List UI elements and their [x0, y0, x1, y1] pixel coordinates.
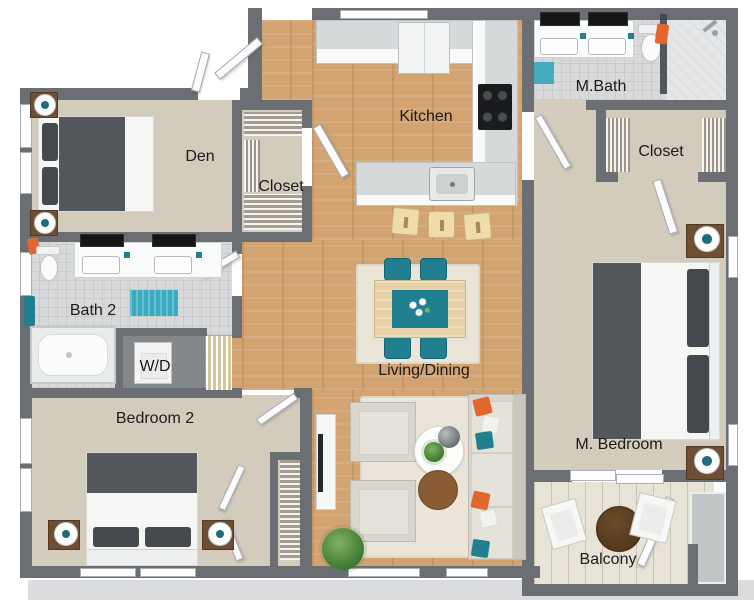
- window: [728, 236, 738, 278]
- coffee-table-plant: [424, 442, 444, 462]
- fridge: [398, 22, 450, 74]
- window: [446, 568, 488, 577]
- room-label-kitchen: Kitchen: [399, 108, 452, 126]
- bedroom2-bed: [86, 452, 198, 566]
- wall: [596, 172, 618, 182]
- room-label-mbedroom: M. Bedroom: [575, 436, 662, 454]
- room-label-balcony: Balcony: [580, 551, 637, 569]
- balcony-sliding-door: [616, 474, 664, 484]
- centerpiece-flowers: [404, 294, 434, 322]
- window: [20, 418, 32, 464]
- wall: [522, 8, 534, 112]
- wall: [586, 100, 738, 110]
- bedroom2-lamp: [54, 522, 78, 546]
- wall: [300, 398, 312, 568]
- armchair-cushion: [359, 489, 409, 535]
- master-bed-pillow: [687, 355, 709, 433]
- room-label-bath2: Bath 2: [70, 302, 116, 320]
- balcony-chair-seat: [638, 502, 668, 535]
- kitchen-sink: [429, 167, 475, 201]
- bathtub: [30, 326, 116, 384]
- lamp-dot: [702, 456, 712, 466]
- den-bed-blanket: [59, 117, 125, 211]
- cooktop: [478, 84, 512, 130]
- bedroom2-closet-shelves: [280, 460, 300, 560]
- sofa-back: [513, 395, 525, 559]
- bar-stool: [428, 211, 455, 238]
- bedroom2-bed-blanket: [87, 453, 197, 493]
- side-table: [418, 470, 458, 510]
- faucet: [450, 182, 455, 187]
- room-label-wd: W/D: [139, 358, 170, 376]
- wall: [302, 110, 312, 128]
- bath2-sink: [82, 256, 120, 274]
- wall: [698, 172, 738, 182]
- tv: [318, 434, 323, 492]
- bath2-mirror: [80, 234, 124, 247]
- room-label-mcloset: Closet: [638, 143, 683, 161]
- lamp-dot: [41, 101, 49, 109]
- window: [20, 468, 32, 512]
- fridge-divider: [424, 23, 425, 73]
- window: [340, 10, 428, 19]
- wall: [232, 296, 242, 338]
- wall: [522, 584, 738, 596]
- bedroom2-bed-sheet: [87, 493, 197, 527]
- mbath-mirror: [540, 12, 580, 26]
- den-bed: [38, 116, 154, 212]
- den-lamp: [34, 212, 56, 234]
- window: [140, 568, 196, 577]
- room-label-den: Den: [185, 148, 214, 166]
- wall: [232, 100, 242, 232]
- room-label-mbath: M.Bath: [576, 78, 627, 96]
- window: [728, 424, 738, 466]
- room-label-bedroom2: Bedroom 2: [116, 410, 194, 428]
- master-bed-sheet: [641, 263, 685, 439]
- wall: [270, 452, 278, 566]
- dining-chair: [420, 258, 447, 281]
- sofa-pillow-teal: [475, 431, 494, 450]
- den-lamp: [34, 94, 56, 116]
- mbath-sink: [540, 38, 578, 55]
- master-bed-headboard: [709, 263, 719, 439]
- shower-head-dot: [712, 30, 718, 36]
- window: [80, 568, 136, 577]
- wall: [726, 8, 738, 596]
- armchair: [350, 402, 416, 462]
- wall: [534, 470, 572, 482]
- wall: [232, 100, 312, 110]
- dining-chair: [420, 336, 447, 359]
- den-closet-shelves: [244, 194, 302, 230]
- bar-stool: [391, 207, 420, 236]
- stool-slot: [476, 222, 481, 233]
- mcloset-rod: [606, 118, 630, 172]
- soap-accent: [124, 252, 130, 258]
- den-door: [191, 52, 210, 93]
- stool-slot: [440, 220, 444, 231]
- mbath-sink: [588, 38, 626, 55]
- wall: [270, 452, 302, 460]
- wall: [522, 566, 534, 596]
- mbath-mirror: [588, 12, 628, 26]
- wd-louver-door: [206, 336, 232, 390]
- bedroom2-bed-pillow: [145, 527, 191, 547]
- kitchen-island: [356, 162, 516, 206]
- wall: [115, 328, 207, 336]
- mcloset-rod: [702, 118, 726, 172]
- bath2-sink: [154, 256, 192, 274]
- bedroom2-bed-pillow: [93, 527, 139, 547]
- bath2-mat: [130, 290, 178, 316]
- wall: [115, 328, 123, 390]
- master-lamp: [694, 226, 720, 252]
- room-label-den-closet: Closet: [258, 178, 303, 196]
- lamp-dot: [41, 219, 49, 227]
- soap-accent: [580, 33, 586, 39]
- living-plant: [322, 528, 364, 570]
- bath2-toilet-tank: [36, 246, 60, 255]
- stool-slot: [403, 217, 408, 228]
- bathtub-basin: [38, 334, 108, 376]
- soap-accent: [628, 33, 634, 39]
- sofa-pillow-white: [478, 508, 498, 528]
- window: [348, 568, 420, 577]
- bathtub-drain: [66, 352, 72, 358]
- wall: [596, 110, 606, 180]
- den-bed-sheet: [125, 117, 153, 211]
- floor-plan: Den Closet Kitchen M.Bath Closet Bath 2 …: [0, 0, 754, 600]
- soap-accent: [196, 252, 202, 258]
- den-closet-shelves: [244, 112, 302, 136]
- balcony-sliding-door: [570, 470, 616, 481]
- mbath-mat: [534, 62, 554, 84]
- lamp-dot: [702, 234, 712, 244]
- lamp-dot: [216, 530, 225, 539]
- wall: [688, 544, 698, 584]
- master-bed-blanket: [593, 263, 641, 439]
- wall: [240, 88, 250, 100]
- sofa-pillow-orange: [470, 490, 490, 510]
- master-bed-pillow: [687, 269, 709, 347]
- dining-chair: [384, 258, 411, 281]
- window: [20, 252, 32, 296]
- bedroom2-lamp: [208, 522, 232, 546]
- master-lamp: [694, 448, 720, 474]
- lamp-dot: [62, 530, 71, 539]
- bath2-mirror: [152, 234, 196, 247]
- bedroom2-headboard: [87, 549, 197, 565]
- den-bed-pillow: [42, 123, 58, 161]
- armchair-cushion: [359, 411, 409, 455]
- bar-stool: [463, 212, 492, 241]
- window: [20, 152, 32, 194]
- balcony-chair-seat: [550, 508, 579, 541]
- sofa-pillow-teal: [471, 539, 490, 558]
- master-bed: [592, 262, 720, 440]
- dining-chair: [384, 336, 411, 359]
- armchair: [350, 480, 416, 542]
- den-bed-pillow: [42, 167, 58, 205]
- bath2-towels: [24, 296, 35, 326]
- room-label-living-dining: Living/Dining: [378, 362, 470, 380]
- bath2-toilet-bowl: [40, 255, 58, 281]
